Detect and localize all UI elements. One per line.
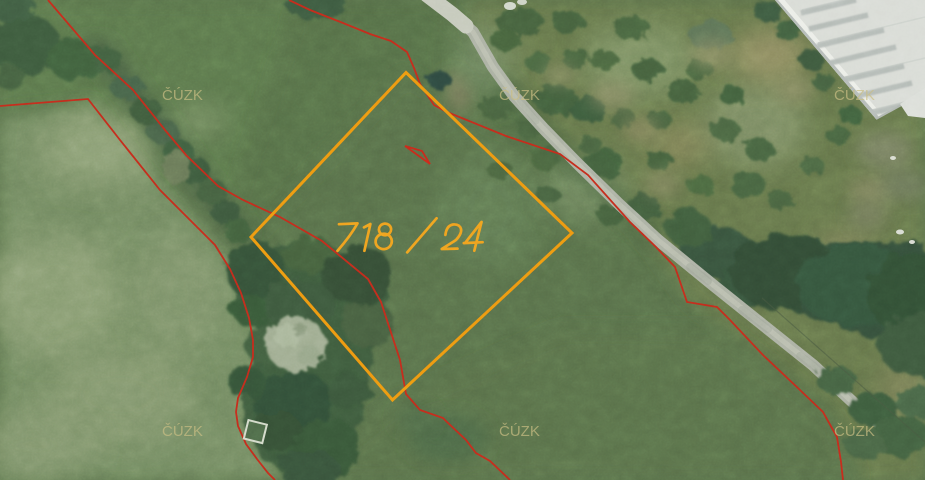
svg-text:ČÚZK: ČÚZK [834,87,875,104]
svg-text:ČÚZK: ČÚZK [162,87,203,104]
svg-text:ČÚZK: ČÚZK [499,87,540,104]
svg-text:ČÚZK: ČÚZK [834,423,875,440]
svg-text:ČÚZK: ČÚZK [499,423,540,440]
svg-text:ČÚZK: ČÚZK [162,423,203,440]
